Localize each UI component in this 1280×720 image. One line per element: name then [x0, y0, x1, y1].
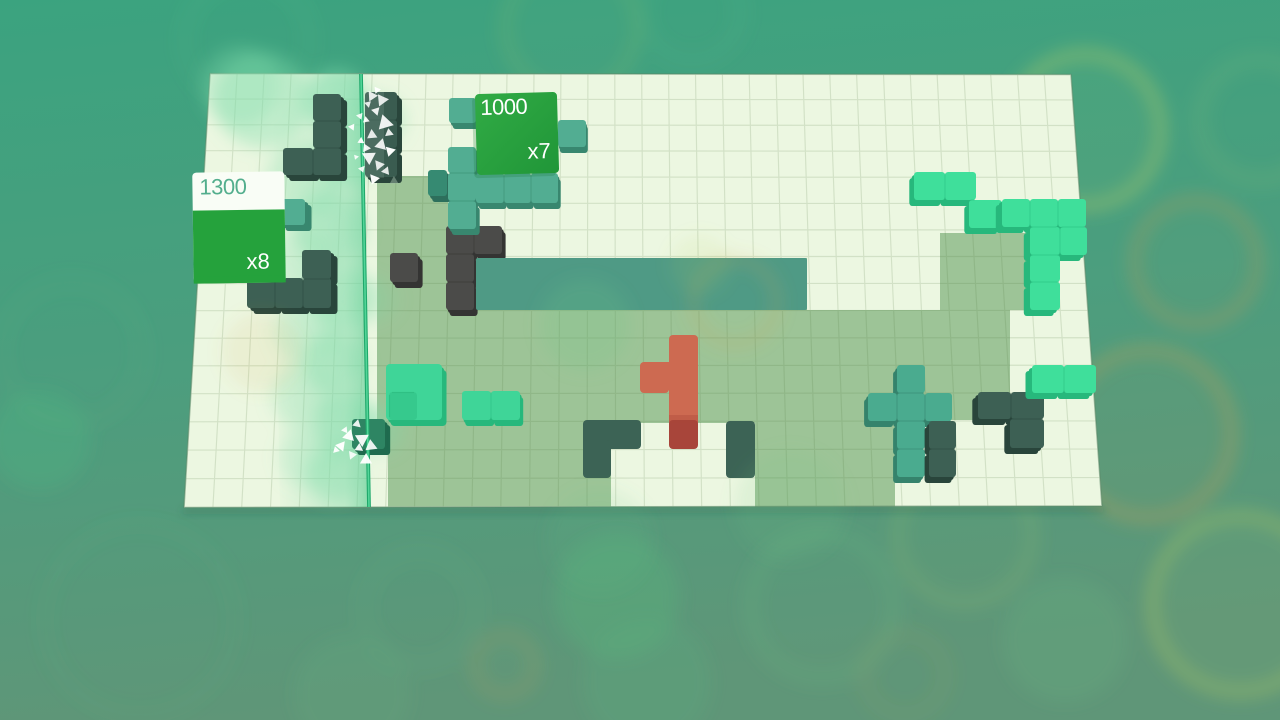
svg-text:x8: x8	[246, 249, 270, 274]
svg-text:1300: 1300	[199, 174, 247, 200]
svg-text:x7: x7	[527, 138, 551, 164]
svg-text:1000: 1000	[480, 94, 528, 120]
